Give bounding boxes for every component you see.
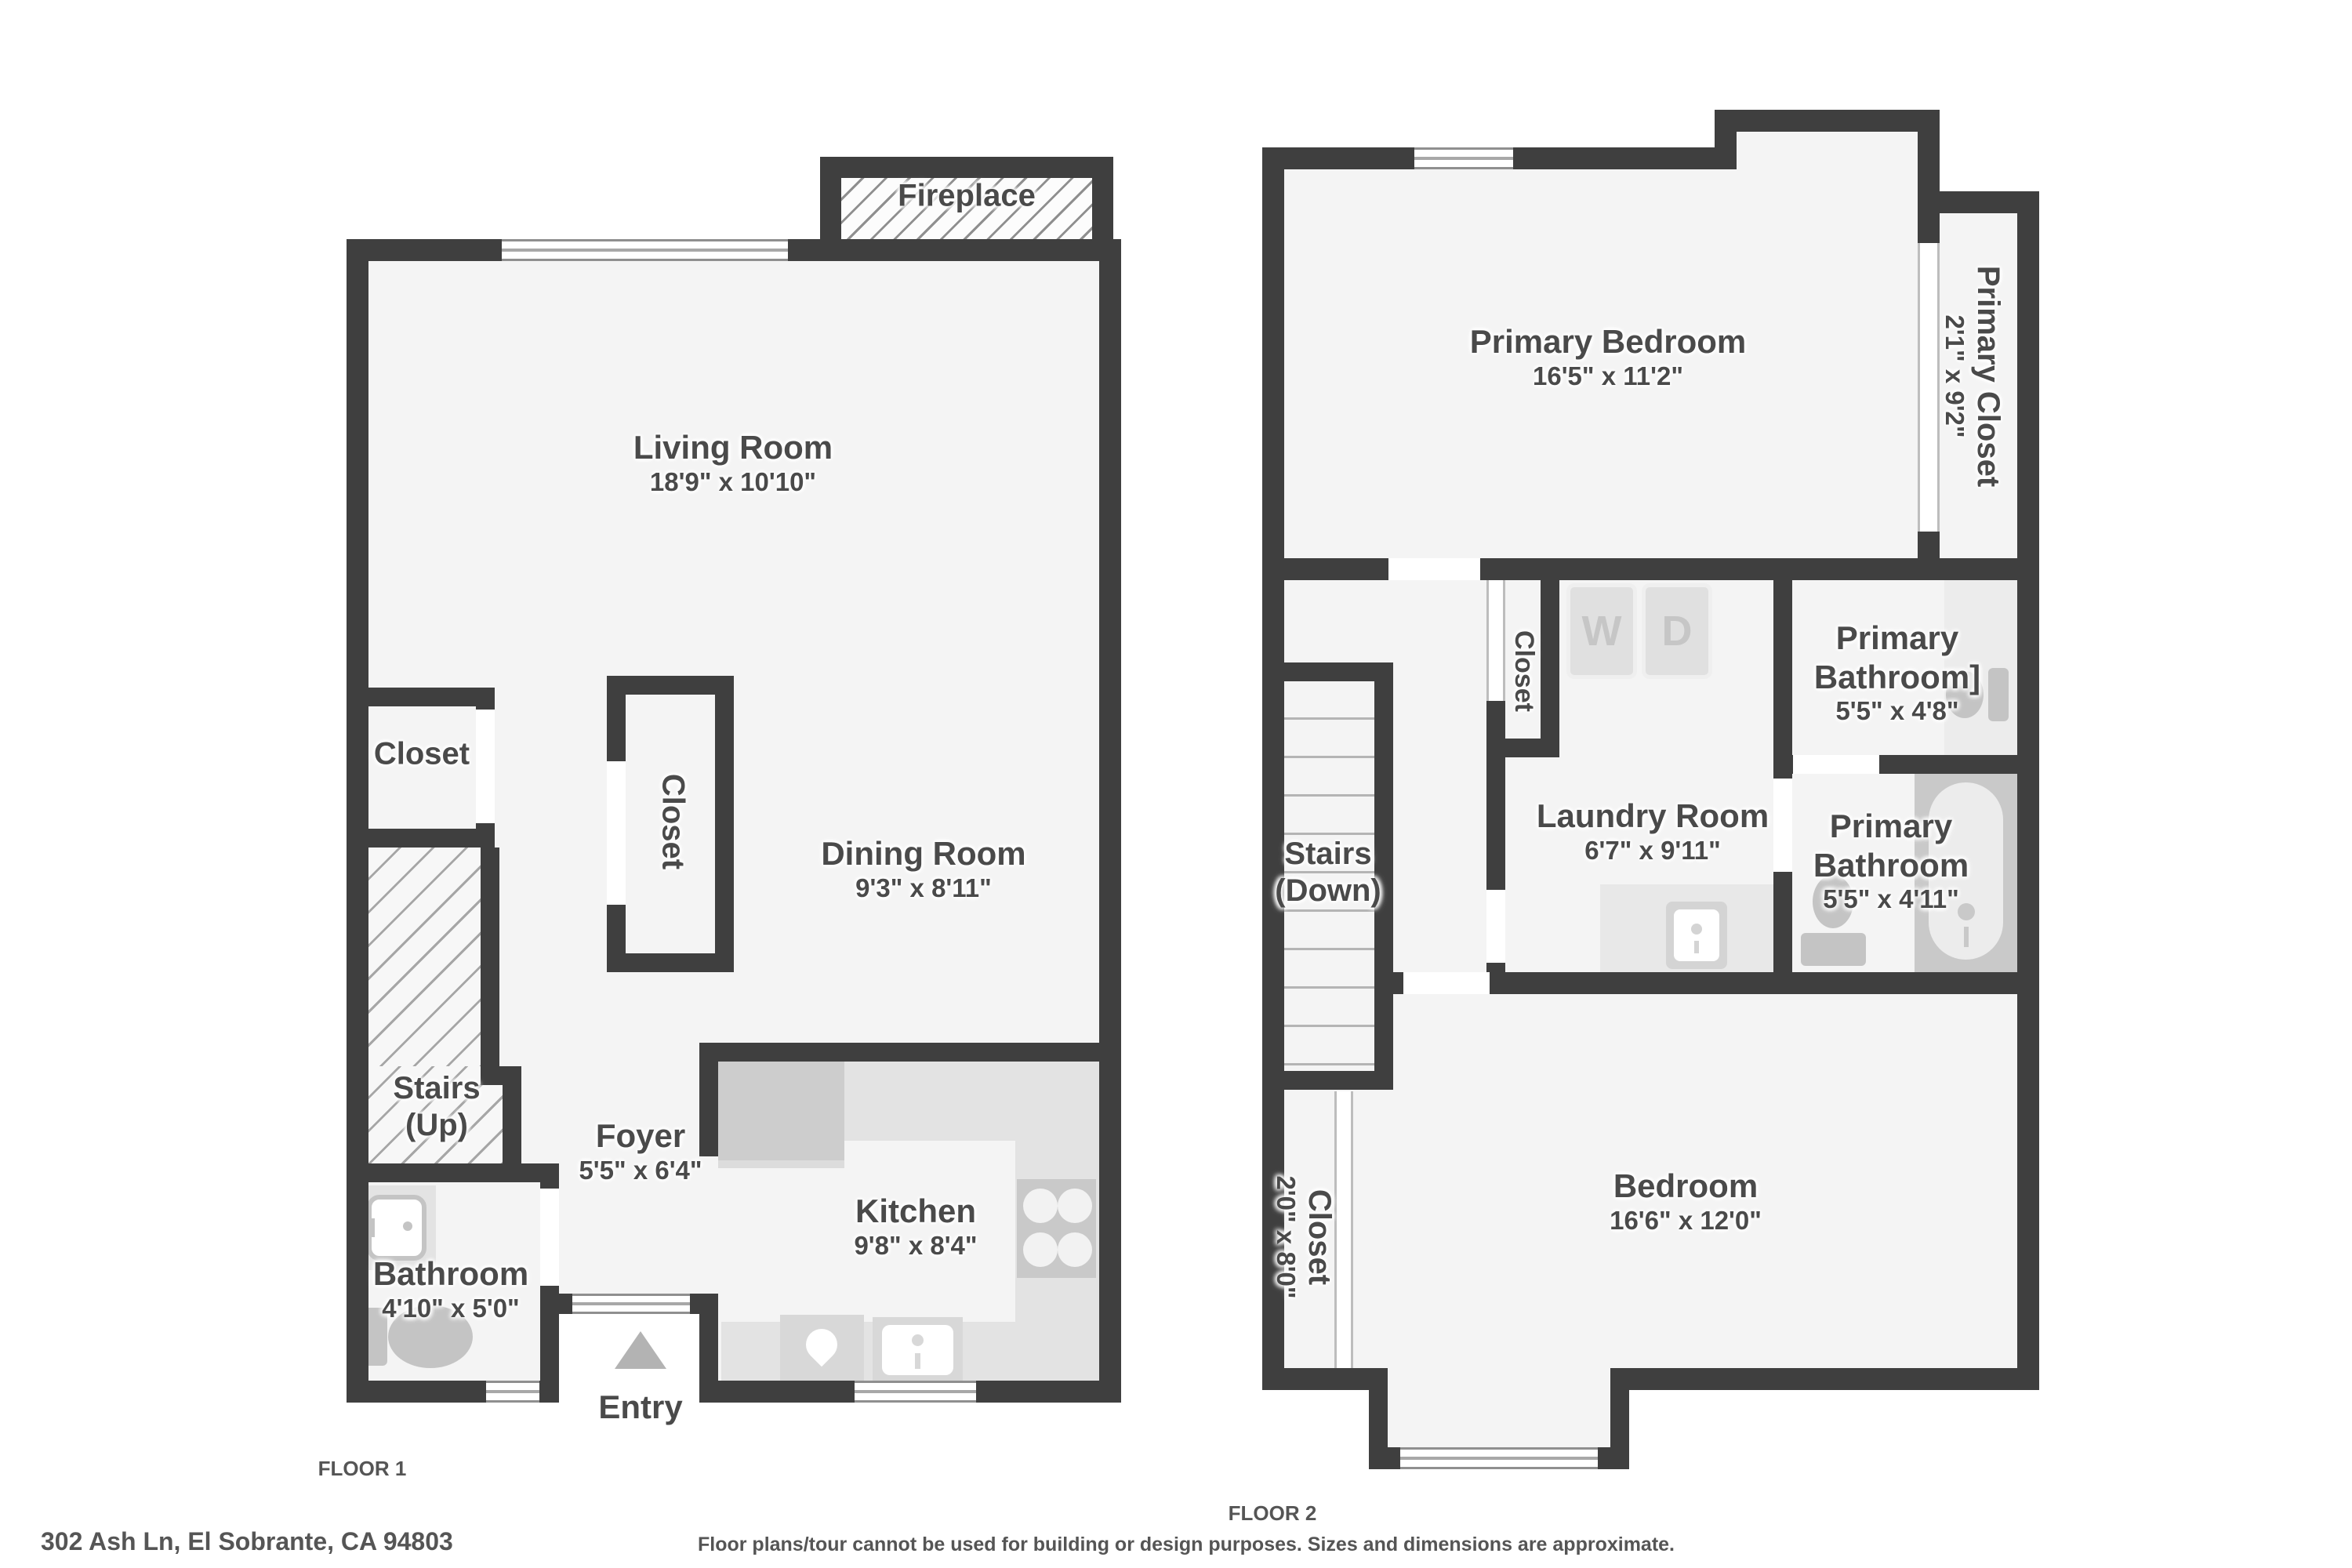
fireplace-label: Fireplace	[898, 177, 1036, 214]
closet-bottom-label: Closet 2'0" x 8'0"	[1270, 1175, 1338, 1298]
fridge-icon	[718, 1051, 844, 1168]
closet-label: Closet	[1508, 630, 1540, 712]
wall	[1629, 1368, 2039, 1390]
wall	[715, 676, 734, 972]
stairs-up-label: Stairs (Up)	[393, 1070, 480, 1144]
address-text: 302 Ash Ln, El Sobrante, CA 94803	[41, 1527, 453, 1556]
closet-label: Closet	[654, 774, 691, 869]
kitchen-label: Kitchen 9'8" x 8'4"	[854, 1192, 977, 1261]
closet-sliding-door	[1486, 580, 1505, 701]
primary-bedroom-window	[1414, 147, 1513, 169]
dining-room-label: Dining Room 9'3" x 8'11"	[821, 834, 1025, 903]
wall	[699, 1043, 718, 1156]
toilet-tank-upper	[1988, 668, 2009, 721]
primary-bathroom-upper-label: Primary Bathroom] 5'5" x 4'8"	[1814, 619, 1980, 727]
stairs-up-hatch-a	[368, 848, 481, 1066]
primary-bedroom-label: Primary Bedroom 16'5" x 11'2"	[1470, 322, 1746, 391]
laundry-door-opening	[1486, 890, 1505, 963]
bathroom-label: Bathroom 4'10" x 5'0"	[373, 1254, 528, 1323]
wall	[1486, 701, 1505, 757]
laundry-room-label: Laundry Room 6'7" x 9'11"	[1537, 797, 1769, 866]
primary-closet-label: Primary Closet 2'1" x 9'2"	[1939, 266, 2006, 487]
fireplace-wall	[1092, 157, 1113, 261]
wall	[2017, 191, 2039, 1390]
bedroom-bay-window	[1400, 1447, 1598, 1469]
bathroom-window	[486, 1381, 539, 1403]
wall	[699, 1294, 718, 1403]
floor-plan-canvas: Fireplace Living Room 18'9" x 10'10" Din…	[0, 0, 2352, 1568]
entry-arrow-icon	[615, 1331, 666, 1369]
dishwasher-icon	[873, 1317, 963, 1381]
stairs-down-label: Stairs (Down)	[1275, 836, 1381, 909]
wall	[1099, 239, 1121, 1403]
wall	[481, 848, 499, 1085]
closet-label: Closet	[374, 735, 470, 772]
dryer-icon: D	[1642, 583, 1712, 679]
stove-icon	[1017, 1179, 1096, 1278]
wall	[1541, 580, 1559, 757]
wall	[1262, 1071, 1393, 1090]
closet-door-opening	[476, 710, 495, 823]
bathroom-inner-door-opening	[1793, 755, 1879, 774]
wall	[699, 1043, 1121, 1062]
bathroom-sink-icon	[367, 1195, 426, 1261]
wall	[347, 239, 368, 1403]
primary-bedroom-door-opening	[1388, 558, 1480, 580]
hall-door-opening	[1403, 972, 1490, 994]
wall	[1715, 110, 1940, 132]
disclaimer-text: Floor plans/tour cannot be used for buil…	[698, 1534, 1675, 1556]
floor2-caption: FLOOR 2	[1229, 1501, 1317, 1526]
wall	[607, 676, 626, 761]
wall	[607, 905, 626, 972]
wall	[1262, 558, 2039, 580]
living-room-window	[502, 239, 788, 261]
living-room-label: Living Room 18'9" x 10'10"	[633, 428, 833, 497]
bedroom-label: Bedroom 16'6" x 12'0"	[1610, 1167, 1762, 1236]
bathroom-door-opening	[1773, 779, 1792, 872]
entry-label: Entry	[598, 1388, 682, 1427]
entry-door-threshold	[572, 1294, 690, 1314]
wall	[1773, 580, 1792, 972]
primary-bathroom-lower-label: Primary Bathroom 5'5" x 4'11"	[1813, 807, 1969, 915]
floor1-interior	[358, 250, 1110, 1392]
wall	[1262, 662, 1393, 681]
foyer-label: Foyer 5'5" x 6'4"	[579, 1116, 702, 1185]
closet-door-opening	[607, 761, 626, 905]
floor2-notch	[1929, 157, 2031, 191]
wall	[347, 239, 502, 261]
floor2-bay	[1380, 1379, 1621, 1458]
fireplace-wall	[820, 157, 1113, 178]
kitchen-window	[855, 1381, 976, 1403]
bathroom-door-opening	[540, 1189, 559, 1286]
utility-appliance-icon	[1666, 902, 1727, 969]
kitchen-counter-bottom	[721, 1322, 1015, 1381]
washer-icon: W	[1566, 583, 1637, 679]
fireplace-wall	[820, 157, 841, 261]
wall	[347, 1163, 559, 1182]
primary-closet-sliding-door	[1918, 243, 1940, 532]
floor1-caption: FLOOR 1	[318, 1457, 407, 1481]
kitchen-counter-top	[844, 1051, 1099, 1141]
wall	[1918, 213, 1940, 243]
toilet-tank-lower	[1801, 933, 1866, 966]
